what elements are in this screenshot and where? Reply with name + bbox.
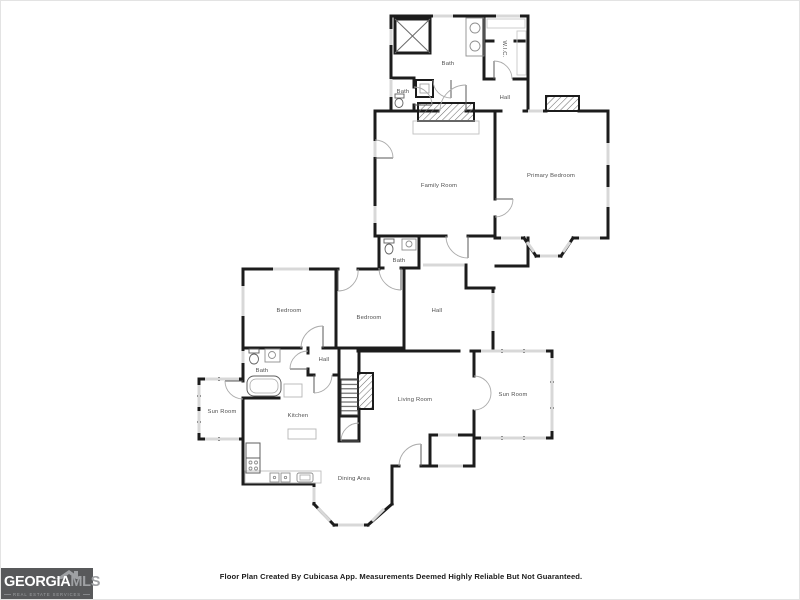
logo-text-mls: MLS xyxy=(70,574,100,590)
logo-text-georgia: GEORGIA xyxy=(4,574,70,590)
disclaimer-text: Floor Plan Created By Cubicasa App. Meas… xyxy=(1,572,800,581)
room-label-bath-lower: Bath xyxy=(256,368,269,374)
room-label-sun-room-left: Sun Room xyxy=(208,409,237,415)
floor-plan: Bath Bath W.I.C. Hall Family Room Primar… xyxy=(1,1,800,600)
room-label-bath-main: Bath xyxy=(442,61,455,67)
room-label-dining-area: Dining Area xyxy=(338,476,371,482)
room-label-living-room: Living Room xyxy=(398,397,432,403)
floor-plan-page: Bath Bath W.I.C. Hall Family Room Primar… xyxy=(0,0,800,600)
room-label-hall-upper: Hall xyxy=(500,95,511,101)
room-label-kitchen: Kitchen xyxy=(288,413,309,419)
room-label-family-room: Family Room xyxy=(421,183,457,189)
room-label-hall-middle: Hall xyxy=(432,308,443,314)
logo-tagline: REAL ESTATE SERVICES xyxy=(1,592,93,597)
room-label-bedroom-left: Bedroom xyxy=(277,308,302,314)
room-label-primary-bedroom: Primary Bedroom xyxy=(527,173,575,179)
room-label-sun-room-right: Sun Room xyxy=(499,392,528,398)
room-label-bedroom-middle: Bedroom xyxy=(357,315,382,321)
room-label-bath-upper: Bath xyxy=(397,89,410,95)
room-label-bath-ensuite: Bath xyxy=(393,258,406,264)
room-label-wic: W.I.C. xyxy=(501,41,507,58)
logo-wordmark: GEORGIAMLS xyxy=(4,574,100,590)
georgia-mls-logo: GEORGIAMLS REAL ESTATE SERVICES xyxy=(1,568,93,599)
room-label-hall-lower: Hall xyxy=(319,357,330,363)
stairs-icon xyxy=(341,379,358,415)
